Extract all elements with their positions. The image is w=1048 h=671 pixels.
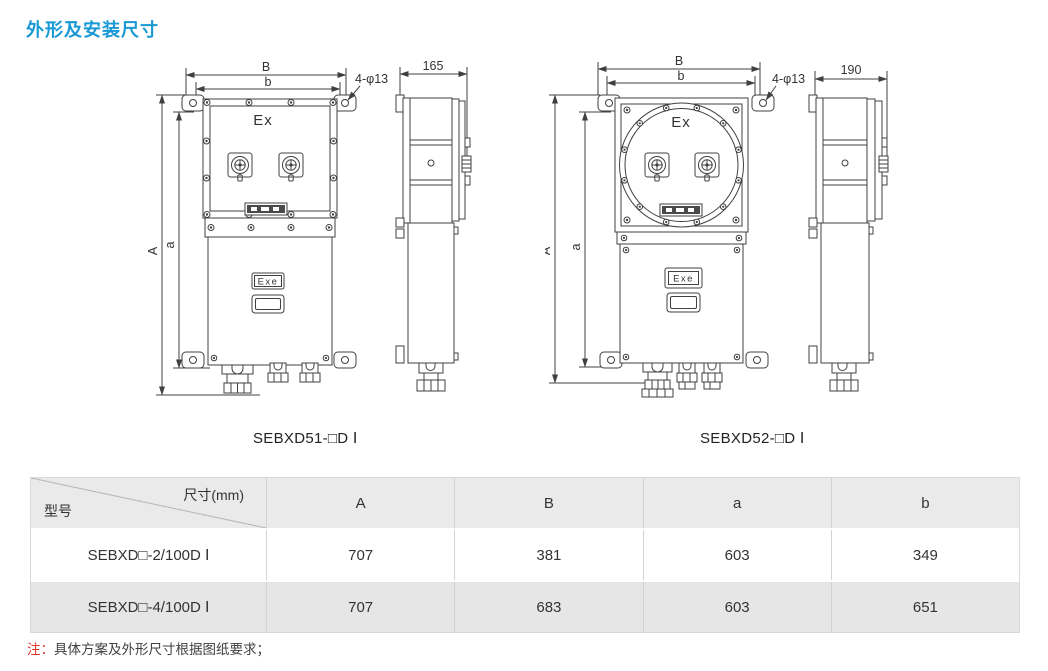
column-header-A: A xyxy=(266,478,454,528)
value-B: 381 xyxy=(454,530,642,580)
datasheet-page: 外形及安装尺寸 B b A xyxy=(0,0,1048,671)
cable-gland xyxy=(677,363,697,389)
value-A: 707 xyxy=(266,582,454,632)
value-a: 603 xyxy=(643,582,831,632)
page-title: 外形及安装尺寸 xyxy=(26,16,159,42)
value-a: 603 xyxy=(643,530,831,580)
model-name: SEBXD□-2/100D Ⅰ xyxy=(31,530,266,580)
value-b: 349 xyxy=(831,530,1019,580)
value-b: 651 xyxy=(831,582,1019,632)
flange-band xyxy=(617,232,746,244)
flange-band xyxy=(205,218,335,237)
svg-text:a: a xyxy=(163,241,177,248)
table-corner-cell: 尺寸(mm) 型号 xyxy=(31,478,266,528)
value-B: 683 xyxy=(454,582,642,632)
ex-marking: Ex xyxy=(671,114,691,131)
table-header-row: 尺寸(mm) 型号 A B a b xyxy=(31,478,1019,528)
corner-label-dimensions: 尺寸(mm) xyxy=(183,485,244,505)
rotary-switch xyxy=(695,153,719,181)
table-row: SEBXD□-2/100D Ⅰ 707 381 603 349 xyxy=(31,530,1019,580)
rotary-switch xyxy=(645,153,669,181)
svg-text:4-φ13: 4-φ13 xyxy=(355,72,388,86)
column-header-b: b xyxy=(831,478,1019,528)
exe-plate: Exe xyxy=(252,273,284,289)
svg-text:b: b xyxy=(678,69,685,83)
svg-text:A: A xyxy=(545,246,553,255)
cable-gland xyxy=(642,363,673,397)
cable-gland xyxy=(222,365,253,393)
svg-text:4-φ13: 4-φ13 xyxy=(772,72,805,86)
svg-text:190: 190 xyxy=(841,63,862,77)
model-name: SEBXD□-4/100D Ⅰ xyxy=(31,582,266,632)
svg-text:B: B xyxy=(262,60,270,74)
cable-gland xyxy=(300,363,320,382)
figure-caption: SEBXD51-□D Ⅰ xyxy=(253,429,358,447)
exe-plate: Exe xyxy=(665,268,702,288)
dimension-b: b xyxy=(607,69,755,97)
svg-text:b: b xyxy=(265,75,272,89)
svg-text:Exe: Exe xyxy=(673,274,694,285)
svg-text:Exe: Exe xyxy=(258,277,279,288)
svg-text:A: A xyxy=(148,246,160,255)
dimension-b: b xyxy=(196,75,340,97)
figure-sebxd51: B b A a xyxy=(148,55,530,425)
cable-gland xyxy=(268,363,288,382)
inspection-window xyxy=(667,293,700,312)
cable-gland xyxy=(702,363,722,389)
svg-text:a: a xyxy=(569,243,583,250)
footnote-prefix: 注： xyxy=(27,642,54,657)
dimensions-table: 尺寸(mm) 型号 A B a b SEBXD□-2/100D Ⅰ 707 38… xyxy=(30,477,1020,633)
corner-label-model: 型号 xyxy=(44,501,72,521)
footnote-text: 具体方案及外形尺寸根据图纸要求； xyxy=(54,642,270,657)
figure-caption: SEBXD52-□D Ⅰ xyxy=(700,429,805,447)
column-header-B: B xyxy=(454,478,642,528)
side-view: 165 xyxy=(396,59,471,391)
value-A: 707 xyxy=(266,530,454,580)
rotary-switch xyxy=(228,153,252,181)
svg-text:165: 165 xyxy=(423,59,444,73)
nameplate xyxy=(660,204,702,216)
footnote: 注：具体方案及外形尺寸根据图纸要求； xyxy=(27,638,270,658)
figure-sebxd52: B b A a 4-φ13 xyxy=(545,55,935,425)
inspection-window xyxy=(252,295,284,313)
ex-marking: Ex xyxy=(253,112,273,129)
column-header-a: a xyxy=(643,478,831,528)
rotary-switch xyxy=(279,153,303,181)
dimension-a: a xyxy=(569,112,613,367)
side-view: 190 xyxy=(809,63,888,391)
table-row: SEBXD□-4/100D Ⅰ 707 683 603 651 xyxy=(31,582,1019,632)
nameplate xyxy=(245,203,287,215)
svg-text:B: B xyxy=(675,55,683,68)
